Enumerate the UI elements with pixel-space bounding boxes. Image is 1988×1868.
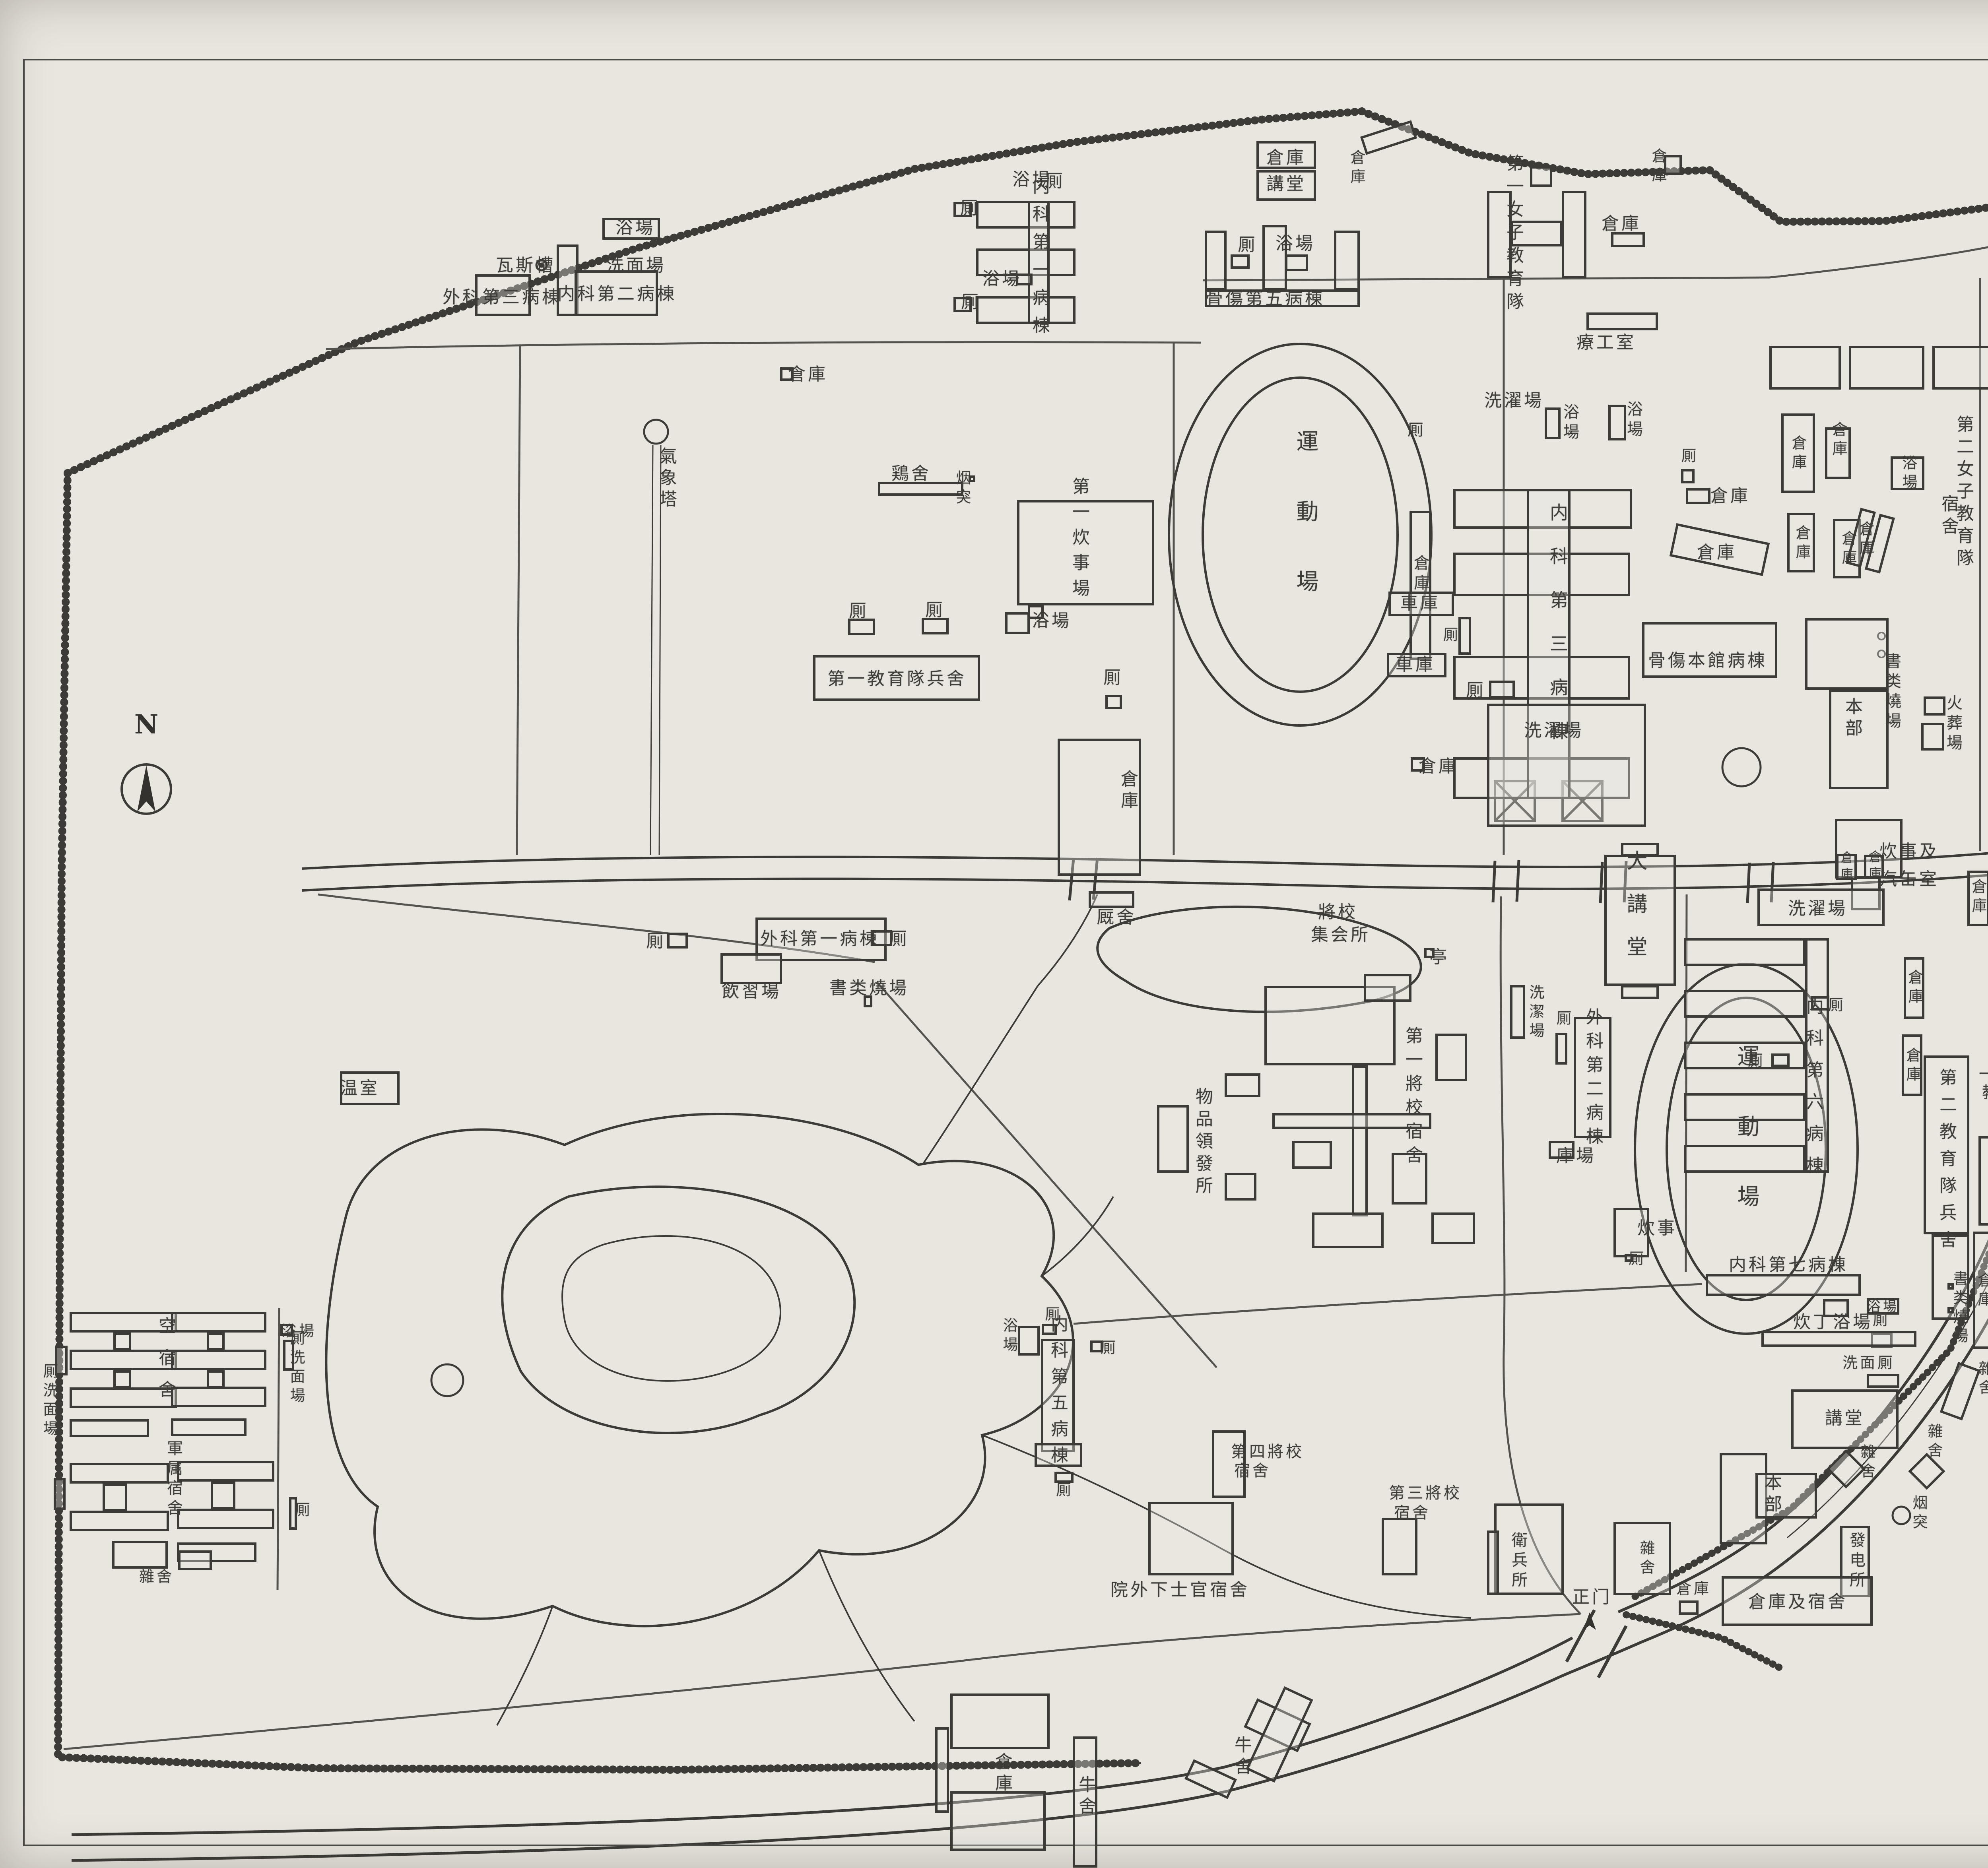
building [178,1550,212,1570]
map-label: 庫場 [1556,1147,1596,1165]
map-label: 宿舍 [1394,1505,1431,1521]
building [177,1509,274,1529]
building [1761,1331,1916,1347]
building [1225,1173,1256,1201]
map-label: 車庫 [1396,656,1435,673]
map-label: 第三將校 [1389,1485,1462,1501]
map-label: 厠 [646,933,666,950]
map-label: 倉庫 [1905,1047,1920,1085]
map-label: 外科第三病棟 [443,289,562,306]
building [1089,891,1134,908]
map-label: 倉庫 [1840,530,1856,568]
map-label: 温室 [340,1080,380,1097]
map-label: 發电所 [1848,1532,1864,1591]
building [113,1333,131,1350]
map-label: 第一將校宿舍 [1404,1026,1421,1170]
map-label: 一九八女子 [1979,1066,1988,1082]
map-label: 氣象塔 [658,447,675,511]
map-label: 瓦斯槽 [496,257,555,274]
map-label: 第一女子教育隊 [1505,154,1522,315]
map-label: 倉庫 [1412,555,1428,594]
scanned-site-plan: 外科第三病棟瓦斯槽内科第二病棟浴場洗面場倉庫厠浴場厠内科第一病棟浴場厠倉庫講堂倉… [0,0,1988,1868]
map-label: 第一教育隊兵舍 [827,670,967,688]
map-label: 空宿舍 [157,1317,174,1412]
map-label: 倉庫及宿舍 [1748,1593,1848,1611]
building [1148,1502,1234,1575]
building [1978,1136,1988,1226]
map-label: 骨傷本館病棟 [1648,652,1767,669]
map-label: 炊事及 [1879,843,1939,860]
map-label: 厩舍 [1097,909,1136,926]
map-label: 厠 [295,1502,313,1517]
building [1562,191,1586,278]
building [113,1370,131,1388]
building [848,619,875,635]
map-label: 炊丁浴場 [1793,1313,1873,1331]
map-label: 浴場 [982,270,1022,288]
map-label: 火葬場 [1945,694,1961,754]
map-label: 飲習場 [722,983,781,1000]
map-label: 宿舍 [1939,495,1957,539]
map-label: 院外下士官宿舍 [1110,1581,1250,1599]
map-label: 車庫 [1400,595,1440,612]
map-label: 浴場 [1867,1300,1899,1313]
main-gate-arrow [1583,1612,1596,1630]
building [922,618,949,634]
map-label: 倉庫 [1650,148,1666,186]
map-label: 療工室 [1576,334,1636,351]
building [1679,1600,1699,1615]
map-label: 浴場 [1625,401,1641,440]
map-label: 倉庫 [1907,969,1922,1007]
map-label: 厠 [849,602,869,620]
building [171,1312,266,1333]
building [1435,1034,1467,1081]
map-label: 厠 [1466,682,1486,699]
map-label: 烟突 [955,470,970,508]
map-label: 厠 [1442,627,1457,646]
map-label: 厠 [1101,1340,1118,1355]
building [1545,407,1561,439]
map-label: 倉庫 [1840,851,1852,884]
map-label: 厠洗面場 [42,1363,57,1439]
building [1684,938,1805,966]
building [1018,1326,1040,1356]
map-label: 洗潔場 [1528,984,1543,1042]
building [935,1727,949,1813]
map-label: 倉庫 [1119,770,1136,813]
building [950,1693,1050,1749]
map-label: 厠洗面場 [289,1330,304,1406]
building [1458,617,1471,655]
building [1771,1053,1790,1067]
map-label: 倉庫 [1710,487,1750,505]
map-label: 外科第一病棟 [760,930,879,948]
map-label: 講堂 [1266,175,1306,193]
map-label: 倉庫 [1971,879,1986,917]
map-label: 厠 [1238,236,1258,254]
building [1769,346,1841,390]
building [171,1350,266,1370]
map-label: 雜舍 [139,1569,174,1584]
map-label: 浴場 [1901,455,1916,493]
building [1686,488,1710,504]
map-label: 厠 [960,200,980,217]
building [70,1419,149,1437]
map-label: 第四將校 [1231,1444,1304,1460]
map-label: 厠 [1828,997,1846,1013]
map-label: 洗濯場 [1484,392,1544,409]
building [171,1418,247,1436]
building [1611,232,1645,247]
map-label: 集会所 [1311,926,1371,944]
map-label: 厠 [961,293,981,311]
building [1231,254,1250,269]
building [1157,1105,1189,1173]
map-label: 倉庫 [993,1752,1011,1795]
map-label: 倉庫 [1419,758,1458,775]
map-label: 倉庫 [1602,215,1641,233]
map-label: 牛舍 [1233,1736,1250,1779]
building [1681,469,1695,483]
building [1706,1274,1861,1296]
map-label: 倉庫 [1266,149,1306,167]
building [1621,985,1659,999]
building [177,1461,274,1482]
building [1005,612,1030,634]
compass-north-label: N [134,709,158,740]
map-label: 將校 [1318,904,1358,921]
map-label: 汽缶室 [1879,871,1939,888]
map-label: 第二女子教育隊 [1955,415,1972,571]
map-label: 洗濯場 [1788,900,1848,918]
compass-icon [122,764,171,814]
building [1334,231,1360,290]
building [720,953,782,984]
map-label: 書类燒場 [1952,1271,1967,1347]
building [1924,696,1945,716]
map-label: 厠 [889,930,909,948]
map-label: 衛兵所 [1510,1532,1526,1591]
map-label: 雜舍 [1859,1444,1874,1482]
map-label: 内科第二病棟 [557,285,677,303]
building [1364,974,1411,1002]
building [103,1484,127,1511]
map-label: 厠 [1406,421,1422,441]
map-label: 烟突 [1911,1495,1926,1533]
building [1555,1033,1567,1065]
map-label: 書类燒場 [829,980,909,997]
map-label: 洗面厠 [1842,1355,1895,1370]
building [1205,231,1227,290]
map-label: 物品領發所 [1194,1087,1211,1199]
map-label: 厠 [925,601,945,619]
building [112,1541,168,1569]
building [1225,1073,1260,1097]
map-label: 第二教育隊兵舍 [1938,1068,1955,1257]
map-label: 厠 [1555,1010,1570,1029]
building [1431,1212,1475,1244]
map-label: 倉庫 [1976,1272,1988,1310]
map-label: 宿舍 [1234,1463,1271,1479]
building [878,482,963,496]
building [1586,312,1658,330]
building [976,201,1076,229]
chimney-icon [1893,1507,1910,1524]
building [667,933,688,949]
map-label: 倉庫 [1697,544,1737,561]
building [171,1387,266,1407]
map-label: 鶏舍 [891,465,931,483]
map-label: 内科第六病棟 [1804,997,1822,1188]
building [1867,1374,1899,1388]
map-label: 軍属宿舍 [165,1440,181,1519]
map-label: 運動場 [1735,1045,1757,1255]
map-label: 倉庫 [1794,525,1809,563]
map-label: 運動場 [1294,430,1316,640]
map-label: 亭 [1429,949,1449,966]
map-label: 講堂 [1825,1410,1865,1427]
map-label: 本部 [1763,1473,1780,1516]
map-label: 内科第五病棟 [1049,1315,1066,1472]
map-label: 正门 [1572,1589,1612,1606]
map-label: 外科第二病棟 [1584,1008,1602,1151]
map-label: 雜舍 [1639,1540,1654,1578]
map-label: 第一炊事場 [1070,477,1088,604]
map-label: 倉庫 [788,366,828,383]
map-label: 洗面場 [606,257,666,274]
map-label: 倉庫 [1676,1581,1711,1596]
map-label: 本部 [1843,697,1861,740]
map-label: 炊事 [1637,1220,1677,1237]
building [976,296,1076,324]
building [54,1478,66,1510]
building [1510,985,1525,1039]
map-label: 牛舍 [1077,1775,1094,1818]
map-label: 教育隊宿舍 [1982,1084,1988,1100]
map-label: 洗濯場 [1524,722,1584,739]
map-label: 倉庫 [1790,435,1806,473]
map-label: 雜舍 [1977,1360,1988,1399]
map-label: 厠 [1629,1251,1646,1266]
building [1849,346,1924,390]
map-label: 厠 [1103,669,1123,687]
map-label: 厠 [1680,448,1695,467]
building [1292,1141,1332,1169]
building [1684,990,1805,1018]
map-label: 厠 [1748,1053,1765,1068]
map-label: 倉庫 [1868,850,1881,883]
building [1312,1212,1384,1248]
map-label: 浴場 [1002,1317,1017,1356]
map-label: 雜舍 [1926,1423,1941,1461]
building [1105,695,1122,709]
map-label: 書类燒場 [1884,653,1900,732]
building [1921,723,1944,751]
map-label: 浴場 [1562,403,1578,443]
building [1608,405,1626,440]
map-label: 厠 [1056,1482,1074,1498]
building [211,1482,235,1509]
map-label: 内科第七病棟 [1729,1256,1848,1274]
building [207,1333,225,1350]
map-label: 浴場 [615,219,655,237]
map-label: 大講堂 [1625,850,1645,979]
building [1805,618,1889,690]
building [1352,1065,1368,1216]
building [1530,166,1552,187]
map-label: 浴場 [1032,612,1072,630]
building [70,1463,169,1484]
building [70,1511,169,1531]
map-label: 倉庫 [1349,149,1364,188]
building [1382,1518,1417,1575]
canal [302,851,1988,903]
building [1932,346,1988,390]
map-label: 浴場 [1276,235,1315,252]
map-label: 倉庫 [1831,421,1846,460]
building [1494,1503,1564,1595]
building [1489,681,1515,698]
building [1487,1530,1499,1595]
building [207,1370,225,1388]
map-label: 内科第一病棟 [1031,177,1048,344]
building [950,1791,1046,1851]
map-label: 骨傷第五病棟 [1206,290,1325,308]
map-label: 倉庫 [1858,521,1873,559]
building [1285,254,1308,271]
